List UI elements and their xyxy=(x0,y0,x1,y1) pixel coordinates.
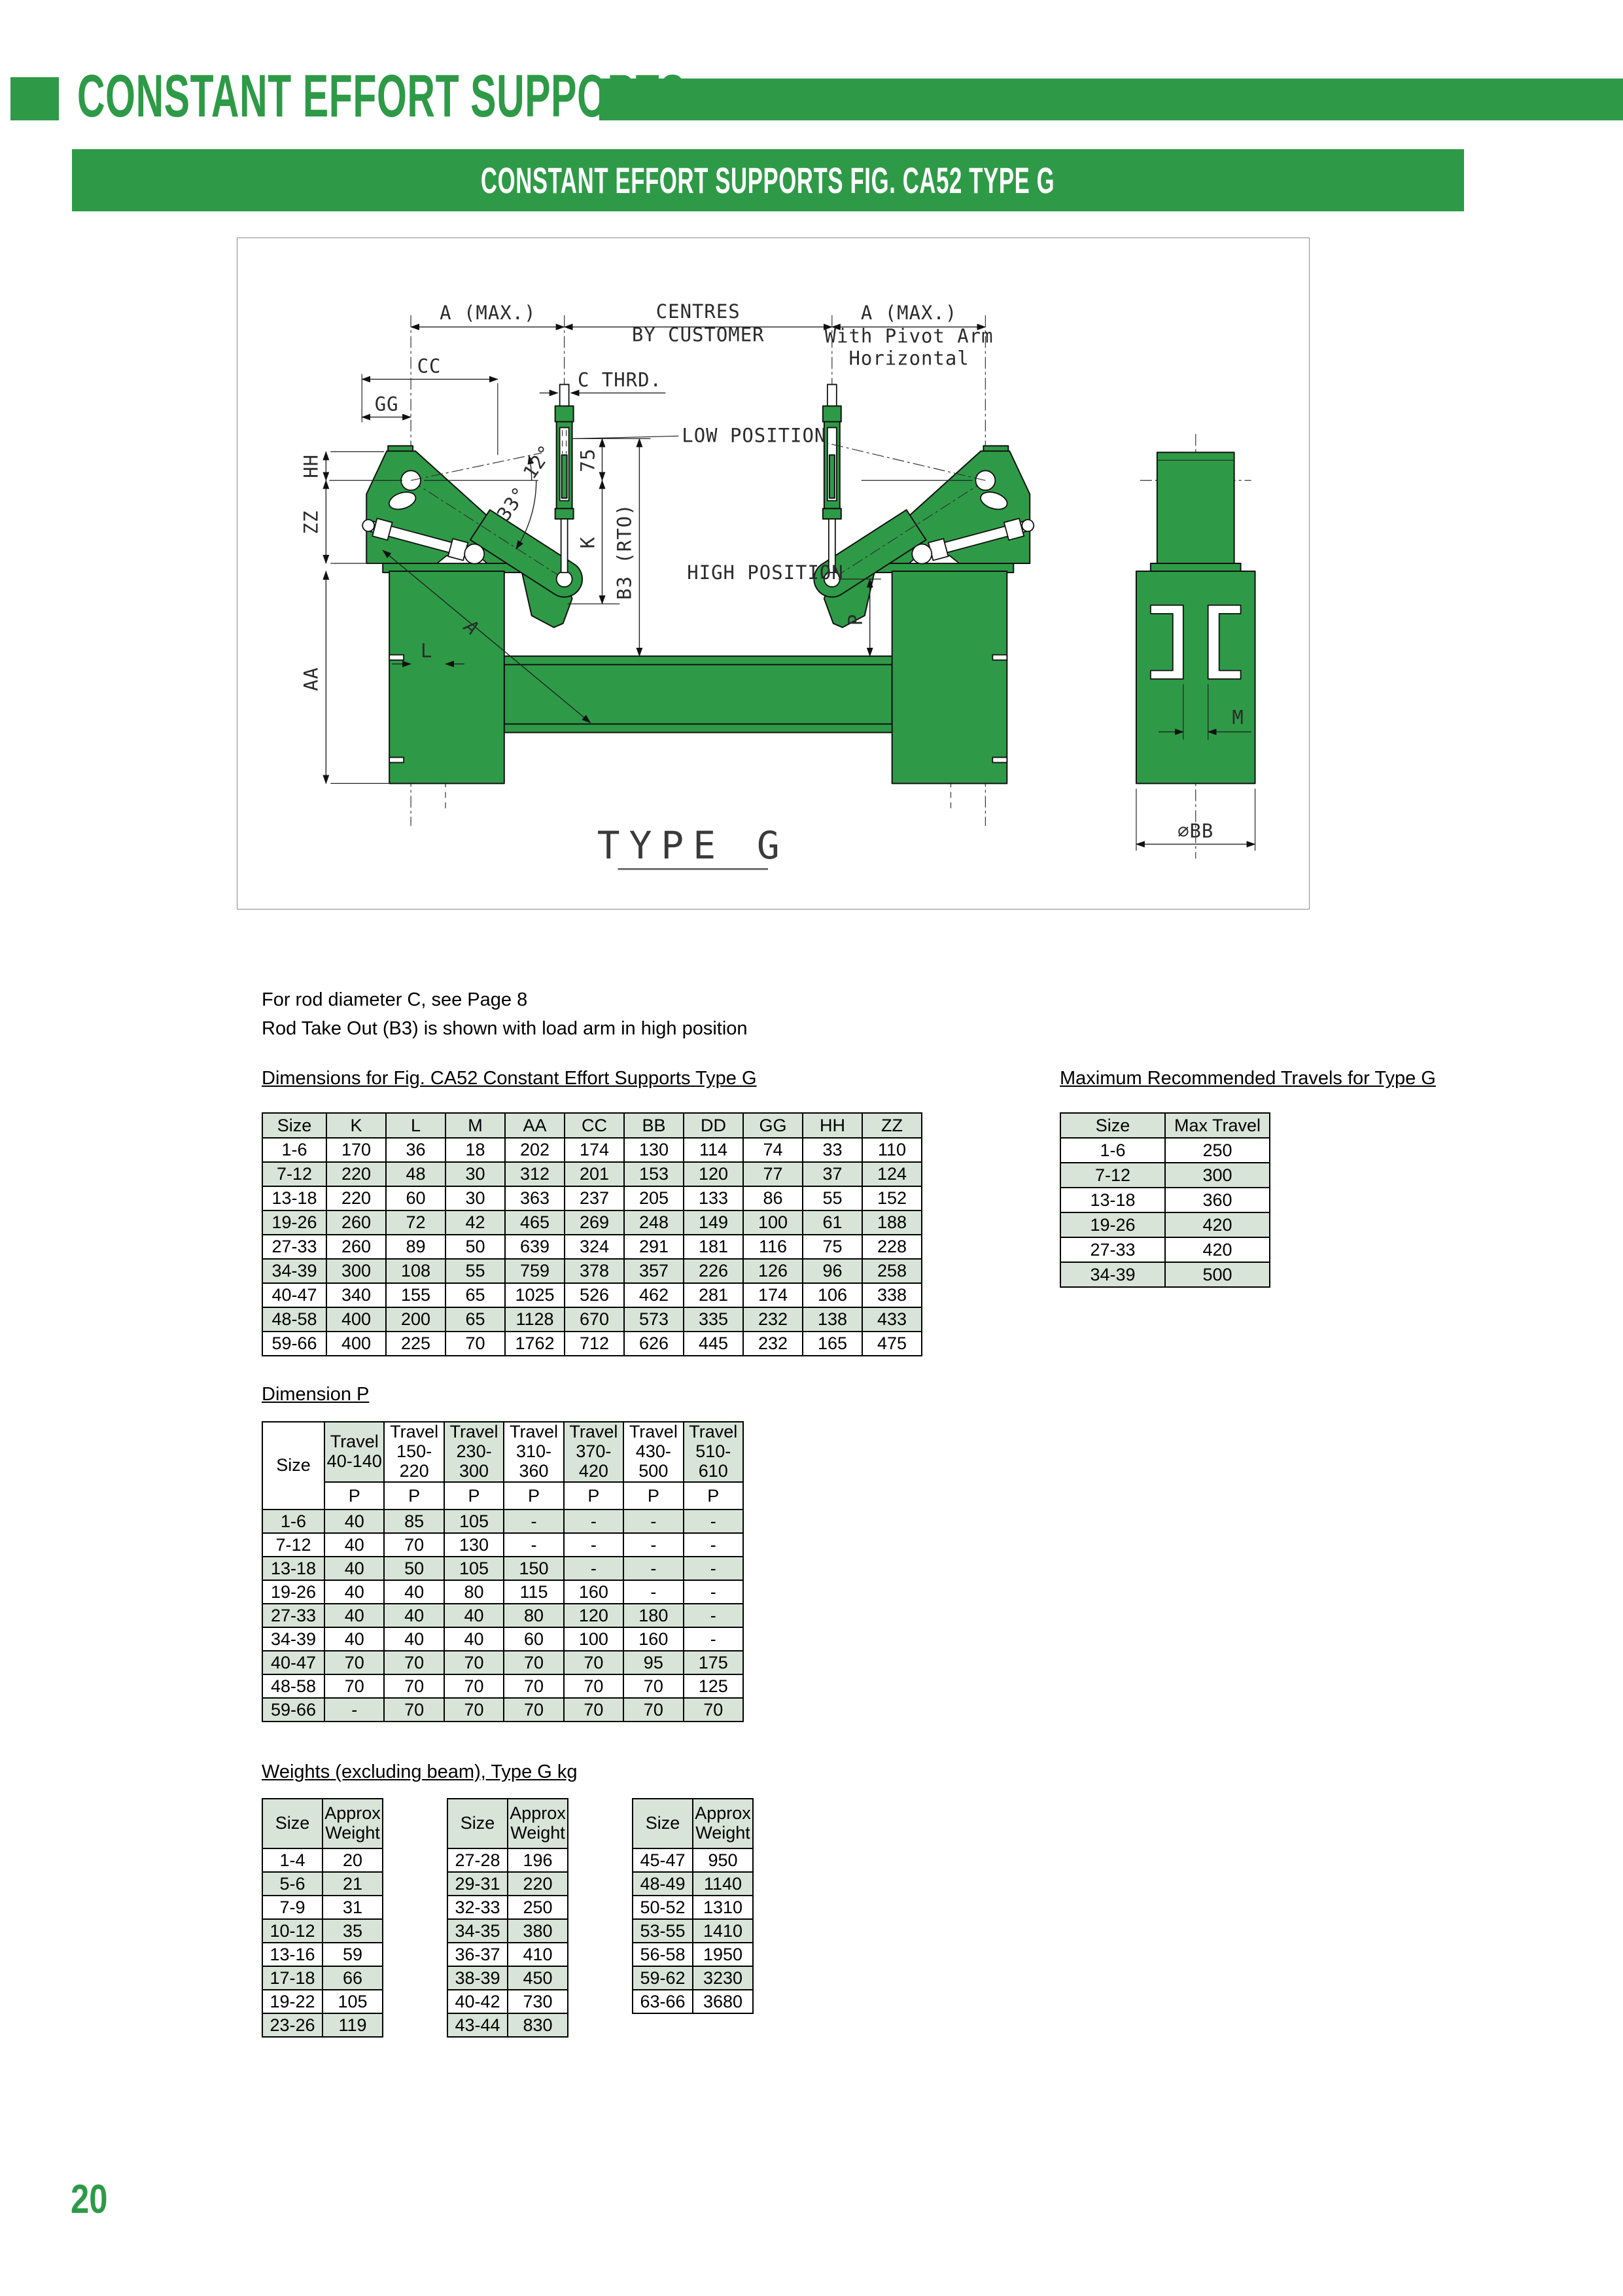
table-header-cell: Size xyxy=(633,1799,693,1848)
table-cell: 70 xyxy=(444,1674,504,1698)
table-cell: 450 xyxy=(508,1966,568,1990)
table-cell: 40-42 xyxy=(447,1990,508,2013)
table-header-cell: ZZ xyxy=(862,1113,922,1138)
table-cell: 70 xyxy=(504,1651,563,1674)
table-cell: 174 xyxy=(565,1138,624,1162)
note-rod-take-out: Rod Take Out (B3) is shown with load arm… xyxy=(262,1018,748,1040)
table-cell: 181 xyxy=(684,1235,743,1259)
travels-table: SizeMax Travel1-62507-1230013-1836019-26… xyxy=(1060,1112,1270,1288)
table-cell: 21 xyxy=(323,1872,383,1896)
table-header-cell: Travel 40-140 xyxy=(324,1422,384,1482)
header-accent-bar xyxy=(599,79,1623,120)
table-cell: 225 xyxy=(386,1332,445,1356)
table-cell: 3680 xyxy=(693,1990,753,2013)
table-cell: 70 xyxy=(564,1651,623,1674)
dim-label-12deg: 12° xyxy=(519,440,558,483)
table-header-cell: Approx Weight xyxy=(323,1799,383,1848)
table-cell: 338 xyxy=(862,1283,922,1307)
table-cell: 42 xyxy=(445,1210,505,1235)
section-banner: CONSTANT EFFORT SUPPORTS FIG. CA52 TYPE … xyxy=(72,149,1464,211)
table-row: 53-551410 xyxy=(633,1919,753,1943)
table-cell: 196 xyxy=(508,1848,568,1872)
table-cell: 639 xyxy=(505,1235,565,1259)
table-cell: 1-4 xyxy=(262,1848,323,1872)
table-header-cell: Size xyxy=(262,1422,324,1510)
table-cell: 70 xyxy=(324,1651,384,1674)
table-cell: 1410 xyxy=(693,1919,753,1943)
table-row: 27-3340404080120180- xyxy=(262,1604,743,1627)
table-cell: 34-39 xyxy=(262,1259,326,1283)
table-cell: 89 xyxy=(386,1235,445,1259)
label-high-position: HIGH POSITION xyxy=(687,561,843,584)
table-cell: 5-6 xyxy=(262,1872,323,1896)
table-cell: 226 xyxy=(684,1259,743,1283)
table-cell: 1025 xyxy=(505,1283,565,1307)
table-cell: 27-33 xyxy=(262,1235,326,1259)
table-cell: 80 xyxy=(504,1604,563,1627)
table-cell: 70 xyxy=(324,1674,384,1698)
table-row: 43-44830 xyxy=(447,2013,568,2037)
table-cell: 175 xyxy=(684,1651,743,1674)
table-cell: 70 xyxy=(445,1332,505,1356)
table-cell: 300 xyxy=(1165,1163,1270,1188)
table-header-cell: BB xyxy=(624,1113,684,1138)
technical-drawing-frame: A (MAX.) CENTRES BY CUSTOMER A (MAX.) Wi… xyxy=(237,238,1310,910)
table-row: 56-581950 xyxy=(633,1943,753,1966)
table-header-cell: AA xyxy=(505,1113,565,1138)
dim-label-hh: HH xyxy=(300,454,322,478)
table-cell: 500 xyxy=(1165,1262,1270,1287)
table-header-cell: Size xyxy=(262,1799,323,1848)
dim-label-horizontal: Horizontal xyxy=(848,347,969,370)
table-row: 34-35380 xyxy=(447,1919,568,1943)
table-cell: 119 xyxy=(323,2013,383,2037)
table-cell: 50 xyxy=(384,1557,444,1580)
table-cell: 626 xyxy=(624,1332,684,1356)
dim-label-gg: GG xyxy=(375,393,399,415)
table-cell: 48-49 xyxy=(633,1872,693,1896)
table-cell: 269 xyxy=(565,1210,624,1235)
table-cell: 357 xyxy=(624,1259,684,1283)
table-row: 29-31220 xyxy=(447,1872,568,1896)
table-cell: 70 xyxy=(504,1674,563,1698)
table-cell: 258 xyxy=(862,1259,922,1283)
table-cell: 153 xyxy=(624,1162,684,1186)
dim-label-bb: ∅BB xyxy=(1178,820,1213,842)
table-cell: 400 xyxy=(326,1307,386,1332)
table-cell: 75 xyxy=(803,1235,862,1259)
table-cell: 72 xyxy=(386,1210,445,1235)
table-cell: 228 xyxy=(862,1235,922,1259)
dim-label-a-max-right: A (MAX.) xyxy=(861,302,957,324)
table-cell: 420 xyxy=(1165,1237,1270,1262)
table-cell: 126 xyxy=(743,1259,803,1283)
table-cell: 40 xyxy=(324,1627,384,1651)
travels-table-heading: Maximum Recommended Travels for Type G xyxy=(1060,1068,1436,1089)
weights-heading: Weights (excluding beam), Type G kg xyxy=(262,1761,578,1783)
table-cell: 40 xyxy=(324,1580,384,1604)
table-cell: 220 xyxy=(508,1872,568,1896)
table-cell: 248 xyxy=(624,1210,684,1235)
table-cell: 13-16 xyxy=(262,1943,323,1966)
table-cell: 95 xyxy=(623,1651,683,1674)
table-cell: 232 xyxy=(743,1332,803,1356)
table-row: 7-12300 xyxy=(1060,1163,1270,1188)
catalog-page: CONSTANT EFFORT SUPPORTS CONSTANT EFFORT… xyxy=(0,0,1623,2296)
table-row: 34-39500 xyxy=(1060,1262,1270,1287)
table-cell: 130 xyxy=(624,1138,684,1162)
table-row: 36-37410 xyxy=(447,1943,568,1966)
table-cell: 36-37 xyxy=(447,1943,508,1966)
table-cell: 120 xyxy=(684,1162,743,1186)
table-cell: 40 xyxy=(324,1557,384,1580)
table-cell: 120 xyxy=(564,1604,623,1627)
table-cell: 70 xyxy=(444,1698,504,1722)
table-cell: - xyxy=(324,1698,384,1722)
table-header-cell: Approx Weight xyxy=(508,1799,568,1848)
table-cell: 165 xyxy=(803,1332,862,1356)
table-cell: 170 xyxy=(326,1138,386,1162)
table-cell: 86 xyxy=(743,1186,803,1210)
dimension-p-table: SizeTravel 40-140Travel 150- 220Travel 2… xyxy=(262,1421,744,1722)
table-header-cell: P xyxy=(384,1482,444,1510)
table-header-cell: Size xyxy=(262,1113,326,1138)
table-cell: 335 xyxy=(684,1307,743,1332)
header-accent-square xyxy=(10,77,59,120)
table-cell: 70 xyxy=(623,1674,683,1698)
table-row: 40-47707070707095175 xyxy=(262,1651,743,1674)
table-cell: 34-39 xyxy=(1060,1262,1165,1287)
table-cell: 380 xyxy=(508,1919,568,1943)
table-cell: 13-18 xyxy=(1060,1188,1165,1212)
dim-label-75: 75 xyxy=(577,448,599,472)
table-cell: 1-6 xyxy=(1060,1138,1165,1163)
table-cell: 363 xyxy=(505,1186,565,1210)
table-cell: 40-47 xyxy=(262,1651,324,1674)
table-cell: 20 xyxy=(323,1848,383,1872)
table-cell: - xyxy=(684,1627,743,1651)
table-cell: 115 xyxy=(504,1580,563,1604)
table-cell: 50-52 xyxy=(633,1896,693,1919)
section-banner-label: CONSTANT EFFORT SUPPORTS FIG. CA52 TYPE … xyxy=(481,159,1055,202)
page-number: 20 xyxy=(71,2176,108,2223)
table-row: 48-58400200651128670573335232138433 xyxy=(262,1307,922,1332)
label-low-position: LOW POSITION xyxy=(682,424,826,446)
table-cell: 3230 xyxy=(693,1966,753,1990)
table-cell: 60 xyxy=(386,1186,445,1210)
table-cell: 205 xyxy=(624,1186,684,1210)
table-cell: 43-44 xyxy=(447,2013,508,2037)
table-header-cell: DD xyxy=(684,1113,743,1138)
table-cell: 60 xyxy=(504,1627,563,1651)
dim-label-b3-rto: B3 (RTO) xyxy=(613,503,635,599)
table-cell: 37 xyxy=(803,1162,862,1186)
table-cell: 100 xyxy=(743,1210,803,1235)
table-cell: 410 xyxy=(508,1943,568,1966)
dim-label-zz: ZZ xyxy=(300,510,322,535)
table-cell: 34-39 xyxy=(262,1627,324,1651)
table-cell: 85 xyxy=(384,1510,444,1533)
table-cell: 40 xyxy=(324,1533,384,1557)
table-cell: 250 xyxy=(1165,1138,1270,1163)
table-cell: 1128 xyxy=(505,1307,565,1332)
table-cell: 74 xyxy=(743,1138,803,1162)
table-cell: - xyxy=(623,1580,683,1604)
table-row: 1-420 xyxy=(262,1848,383,1872)
table-row: 27-33420 xyxy=(1060,1237,1270,1262)
table-row: 34-3940404060100160- xyxy=(262,1627,743,1651)
table-row: 23-26119 xyxy=(262,2013,383,2037)
table-cell: 200 xyxy=(386,1307,445,1332)
table-cell: 188 xyxy=(862,1210,922,1235)
table-cell: 27-28 xyxy=(447,1848,508,1872)
table-cell: 7-12 xyxy=(1060,1163,1165,1188)
table-cell: 70 xyxy=(384,1533,444,1557)
table-header-cell: Travel 310- 360 xyxy=(504,1422,563,1482)
table-cell: 23-26 xyxy=(262,2013,323,2037)
table-cell: 152 xyxy=(862,1186,922,1210)
table-cell: 150 xyxy=(504,1557,563,1580)
table-cell: 105 xyxy=(444,1510,504,1533)
table-cell: 465 xyxy=(505,1210,565,1235)
table-header-cell: Size xyxy=(447,1799,508,1848)
table-cell: - xyxy=(623,1533,683,1557)
table-header-cell: M xyxy=(445,1113,505,1138)
table-cell: 48-58 xyxy=(262,1307,326,1332)
dim-label-p: P xyxy=(845,614,867,626)
table-cell: 59-66 xyxy=(262,1698,324,1722)
table-cell: 420 xyxy=(1165,1212,1270,1237)
table-cell: 70 xyxy=(684,1698,743,1722)
table-row: 7-931 xyxy=(262,1896,383,1919)
dim-label-with-pivot-arm: With Pivot Arm xyxy=(825,325,994,347)
table-cell: 59 xyxy=(323,1943,383,1966)
weights-table-2: SizeApprox Weight27-2819629-3122032-3325… xyxy=(447,1798,568,2038)
table-header-cell: L xyxy=(386,1113,445,1138)
drawing-title-type-g: TYPE G xyxy=(597,823,789,868)
table-row: 17-1866 xyxy=(262,1966,383,1990)
table-row: 13-1659 xyxy=(262,1943,383,1966)
table-cell: 19-26 xyxy=(262,1210,326,1235)
table-cell: 70 xyxy=(504,1698,563,1722)
table-cell: - xyxy=(684,1604,743,1627)
table-cell: 125 xyxy=(684,1674,743,1698)
table-cell: 80 xyxy=(444,1580,504,1604)
table-cell: - xyxy=(684,1557,743,1580)
table-header-cell: Travel 430- 500 xyxy=(623,1422,683,1482)
table-cell: 35 xyxy=(323,1919,383,1943)
table-cell: 149 xyxy=(684,1210,743,1235)
table-cell: 830 xyxy=(508,2013,568,2037)
note-rod-diameter: For rod diameter C, see Page 8 xyxy=(262,989,527,1011)
table-cell: 55 xyxy=(803,1186,862,1210)
table-cell: 70 xyxy=(564,1698,623,1722)
table-cell: 312 xyxy=(505,1162,565,1186)
table-cell: - xyxy=(623,1510,683,1533)
table-header-cell: CC xyxy=(565,1113,624,1138)
weights-table-3: SizeApprox Weight45-4795048-49114050-521… xyxy=(632,1798,754,2014)
table-cell: 360 xyxy=(1165,1188,1270,1212)
table-cell: 433 xyxy=(862,1307,922,1332)
dim-label-l: L xyxy=(421,640,432,662)
table-cell: 400 xyxy=(326,1332,386,1356)
table-row: 7-1222048303122011531207737124 xyxy=(262,1162,922,1186)
table-cell: 378 xyxy=(565,1259,624,1283)
table-cell: 50 xyxy=(445,1235,505,1259)
table-cell: 70 xyxy=(623,1698,683,1722)
table-cell: 462 xyxy=(624,1283,684,1307)
table-cell: 1-6 xyxy=(262,1510,324,1533)
table-cell: 526 xyxy=(565,1283,624,1307)
table-cell: 110 xyxy=(862,1138,922,1162)
table-row: 59-66-707070707070 xyxy=(262,1698,743,1722)
table-cell: 31 xyxy=(323,1896,383,1919)
table-header-cell: HH xyxy=(803,1113,862,1138)
table-cell: 19-26 xyxy=(1060,1212,1165,1237)
table-cell: 237 xyxy=(565,1186,624,1210)
table-cell: - xyxy=(564,1533,623,1557)
table-cell: 65 xyxy=(445,1307,505,1332)
table-cell: 70 xyxy=(384,1674,444,1698)
dim-label-aa: AA xyxy=(300,667,322,691)
table-header-cell: P xyxy=(324,1482,384,1510)
table-cell: 124 xyxy=(862,1162,922,1186)
table-row: 40-42730 xyxy=(447,1990,568,2013)
table-row: 19-26260724246526924814910061188 xyxy=(262,1210,922,1235)
table-header-cell: Travel 230- 300 xyxy=(444,1422,504,1482)
table-cell: 106 xyxy=(803,1283,862,1307)
table-cell: 30 xyxy=(445,1186,505,1210)
table-cell: 670 xyxy=(565,1307,624,1332)
table-cell: 56-58 xyxy=(633,1943,693,1966)
table-header-cell: P xyxy=(444,1482,504,1510)
table-cell: 138 xyxy=(803,1307,862,1332)
dimensions-table-heading: Dimensions for Fig. CA52 Constant Effort… xyxy=(262,1068,757,1089)
table-cell: 19-22 xyxy=(262,1990,323,2013)
table-row: 7-124070130---- xyxy=(262,1533,743,1557)
table-cell: 40-47 xyxy=(262,1283,326,1307)
table-cell: 475 xyxy=(862,1332,922,1356)
table-row: 59-623230 xyxy=(633,1966,753,1990)
dim-label-c-thrd: C THRD. xyxy=(578,369,662,391)
table-cell: 260 xyxy=(326,1210,386,1235)
table-header-cell: Travel 150- 220 xyxy=(384,1422,444,1482)
table-cell: 105 xyxy=(323,1990,383,2013)
table-cell: 30 xyxy=(445,1162,505,1186)
dim-label-cc: CC xyxy=(417,355,442,378)
table-cell: 201 xyxy=(565,1162,624,1186)
table-cell: 10-12 xyxy=(262,1919,323,1943)
table-cell: 300 xyxy=(326,1259,386,1283)
table-cell: 174 xyxy=(743,1283,803,1307)
table-header-cell: P xyxy=(623,1482,683,1510)
table-cell: 40 xyxy=(444,1604,504,1627)
table-cell: 759 xyxy=(505,1259,565,1283)
table-cell: 130 xyxy=(444,1533,504,1557)
table-cell: 18 xyxy=(445,1138,505,1162)
table-cell: 70 xyxy=(564,1674,623,1698)
table-cell: 445 xyxy=(684,1332,743,1356)
table-cell: 712 xyxy=(565,1332,624,1356)
table-cell: 33 xyxy=(803,1138,862,1162)
table-cell: 17-18 xyxy=(262,1966,323,1990)
table-cell: 232 xyxy=(743,1307,803,1332)
table-cell: - xyxy=(504,1533,563,1557)
table-cell: 45-47 xyxy=(633,1848,693,1872)
dim-label-centres: CENTRES xyxy=(656,300,741,323)
table-cell: 65 xyxy=(445,1283,505,1307)
dimension-p-heading: Dimension P xyxy=(262,1384,369,1405)
table-cell: 340 xyxy=(326,1283,386,1307)
table-header-cell: Travel 370- 420 xyxy=(564,1422,623,1482)
table-row: 1-6250 xyxy=(1060,1138,1270,1163)
table-cell: 40 xyxy=(444,1627,504,1651)
dim-label-by-customer: BY CUSTOMER xyxy=(632,324,765,346)
table-row: 48-491140 xyxy=(633,1872,753,1896)
table-row: 19-22105 xyxy=(262,1990,383,2013)
table-cell: 36 xyxy=(386,1138,445,1162)
table-row: 45-47950 xyxy=(633,1848,753,1872)
table-cell: 66 xyxy=(323,1966,383,1990)
table-cell: 155 xyxy=(386,1283,445,1307)
table-cell: 61 xyxy=(803,1210,862,1235)
table-header-cell: P xyxy=(564,1482,623,1510)
dim-label-m: M xyxy=(1232,707,1244,729)
table-header-cell: Travel 510- 610 xyxy=(684,1422,743,1482)
table-cell: 281 xyxy=(684,1283,743,1307)
table-cell: 1950 xyxy=(693,1943,753,1966)
table-cell: 40 xyxy=(384,1604,444,1627)
table-cell: 70 xyxy=(384,1698,444,1722)
table-cell: 180 xyxy=(623,1604,683,1627)
table-row: 13-184050105150--- xyxy=(262,1557,743,1580)
table-cell: 133 xyxy=(684,1186,743,1210)
table-cell: 250 xyxy=(508,1896,568,1919)
table-row: 27-28196 xyxy=(447,1848,568,1872)
table-row: 1-64085105---- xyxy=(262,1510,743,1533)
table-row: 38-39450 xyxy=(447,1966,568,1990)
table-cell: 1-6 xyxy=(262,1138,326,1162)
table-cell: 7-12 xyxy=(262,1533,324,1557)
table-cell: 324 xyxy=(565,1235,624,1259)
table-row: 10-1235 xyxy=(262,1919,383,1943)
table-row: 5-621 xyxy=(262,1872,383,1896)
table-header-cell: GG xyxy=(743,1113,803,1138)
table-cell: 40 xyxy=(384,1627,444,1651)
table-cell: 96 xyxy=(803,1259,862,1283)
table-cell: 7-12 xyxy=(262,1162,326,1186)
table-header-cell: Max Travel xyxy=(1165,1113,1270,1138)
table-cell: - xyxy=(564,1557,623,1580)
table-cell: 1140 xyxy=(693,1872,753,1896)
page-title: CONSTANT EFFORT SUPPORTS xyxy=(77,68,686,124)
dim-label-a-max-left: A (MAX.) xyxy=(440,302,536,324)
table-cell: 59-66 xyxy=(262,1332,326,1356)
table-cell: 13-18 xyxy=(262,1186,326,1210)
table-cell: 34-35 xyxy=(447,1919,508,1943)
table-cell: 1310 xyxy=(693,1896,753,1919)
type-g-drawing: A (MAX.) CENTRES BY CUSTOMER A (MAX.) Wi… xyxy=(237,238,1309,909)
table-cell: 53-55 xyxy=(633,1919,693,1943)
table-cell: 27-33 xyxy=(262,1604,324,1627)
table-cell: 70 xyxy=(384,1651,444,1674)
table-cell: 260 xyxy=(326,1235,386,1259)
table-cell: 160 xyxy=(623,1627,683,1651)
table-cell: 7-9 xyxy=(262,1896,323,1919)
table-cell: 38-39 xyxy=(447,1966,508,1990)
table-cell: 220 xyxy=(326,1162,386,1186)
table-row: 1-617036182021741301147433110 xyxy=(262,1138,922,1162)
